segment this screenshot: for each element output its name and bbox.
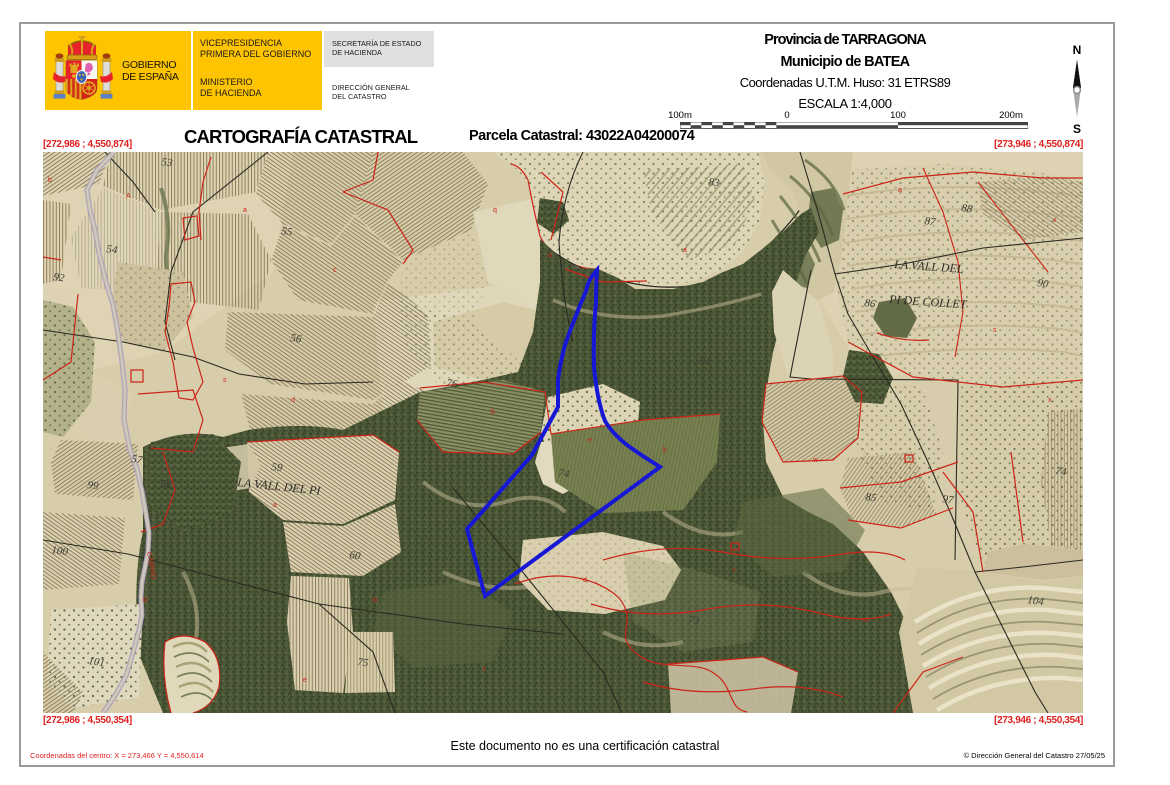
svg-text:73: 73 bbox=[688, 614, 701, 627]
svg-text:76: 76 bbox=[446, 377, 459, 390]
svg-text:86: 86 bbox=[864, 297, 877, 310]
svg-text:92: 92 bbox=[53, 271, 66, 284]
svg-text:84: 84 bbox=[699, 355, 712, 368]
svg-text:w: w bbox=[812, 457, 819, 464]
svg-text:104: 104 bbox=[1027, 594, 1046, 608]
svg-text:75: 75 bbox=[357, 656, 370, 669]
svg-text:100: 100 bbox=[51, 544, 70, 558]
svg-text:a: a bbox=[273, 502, 277, 509]
svg-text:60: 60 bbox=[349, 549, 362, 562]
svg-text:s: s bbox=[993, 327, 997, 334]
svg-text:a: a bbox=[683, 247, 687, 254]
svg-text:a: a bbox=[243, 207, 247, 214]
svg-text:d: d bbox=[143, 597, 147, 604]
svg-text:83: 83 bbox=[708, 176, 721, 189]
svg-text:57: 57 bbox=[131, 453, 144, 466]
svg-text:q: q bbox=[493, 207, 497, 214]
svg-text:d: d bbox=[291, 397, 295, 404]
svg-text:85: 85 bbox=[865, 491, 878, 504]
svg-text:b: b bbox=[48, 177, 52, 184]
svg-text:97: 97 bbox=[942, 493, 955, 506]
svg-text:a: a bbox=[548, 252, 552, 259]
svg-text:74: 74 bbox=[558, 467, 571, 480]
svg-text:56: 56 bbox=[290, 332, 303, 345]
svg-text:b: b bbox=[491, 409, 495, 416]
svg-text:88: 88 bbox=[961, 202, 974, 215]
svg-text:s: s bbox=[223, 377, 227, 384]
svg-text:58: 58 bbox=[160, 478, 173, 491]
svg-text:c: c bbox=[333, 267, 337, 274]
svg-text:e: e bbox=[303, 677, 307, 684]
svg-text:101: 101 bbox=[88, 655, 106, 669]
svg-text:e: e bbox=[588, 437, 592, 444]
svg-text:74: 74 bbox=[1055, 465, 1068, 478]
svg-text:99: 99 bbox=[87, 479, 100, 492]
svg-text:S: S bbox=[1073, 122, 1081, 136]
svg-text:59: 59 bbox=[271, 461, 284, 474]
svg-text:x: x bbox=[1048, 397, 1052, 404]
svg-text:90: 90 bbox=[1037, 277, 1050, 290]
svg-text:m: m bbox=[863, 617, 869, 624]
svg-text:N: N bbox=[1073, 43, 1082, 57]
svg-text:55: 55 bbox=[281, 225, 294, 238]
svg-text:54: 54 bbox=[106, 243, 119, 256]
svg-text:a: a bbox=[898, 187, 902, 194]
svg-text:87: 87 bbox=[924, 215, 937, 228]
svg-text:x: x bbox=[1053, 217, 1057, 224]
svg-text:f: f bbox=[483, 667, 485, 674]
svg-text:b: b bbox=[373, 597, 377, 604]
svg-text:d: d bbox=[583, 577, 587, 584]
svg-text:b: b bbox=[663, 447, 667, 454]
svg-text:.: . bbox=[823, 152, 825, 154]
svg-text:A: A bbox=[126, 193, 131, 200]
svg-text:53: 53 bbox=[161, 156, 174, 169]
